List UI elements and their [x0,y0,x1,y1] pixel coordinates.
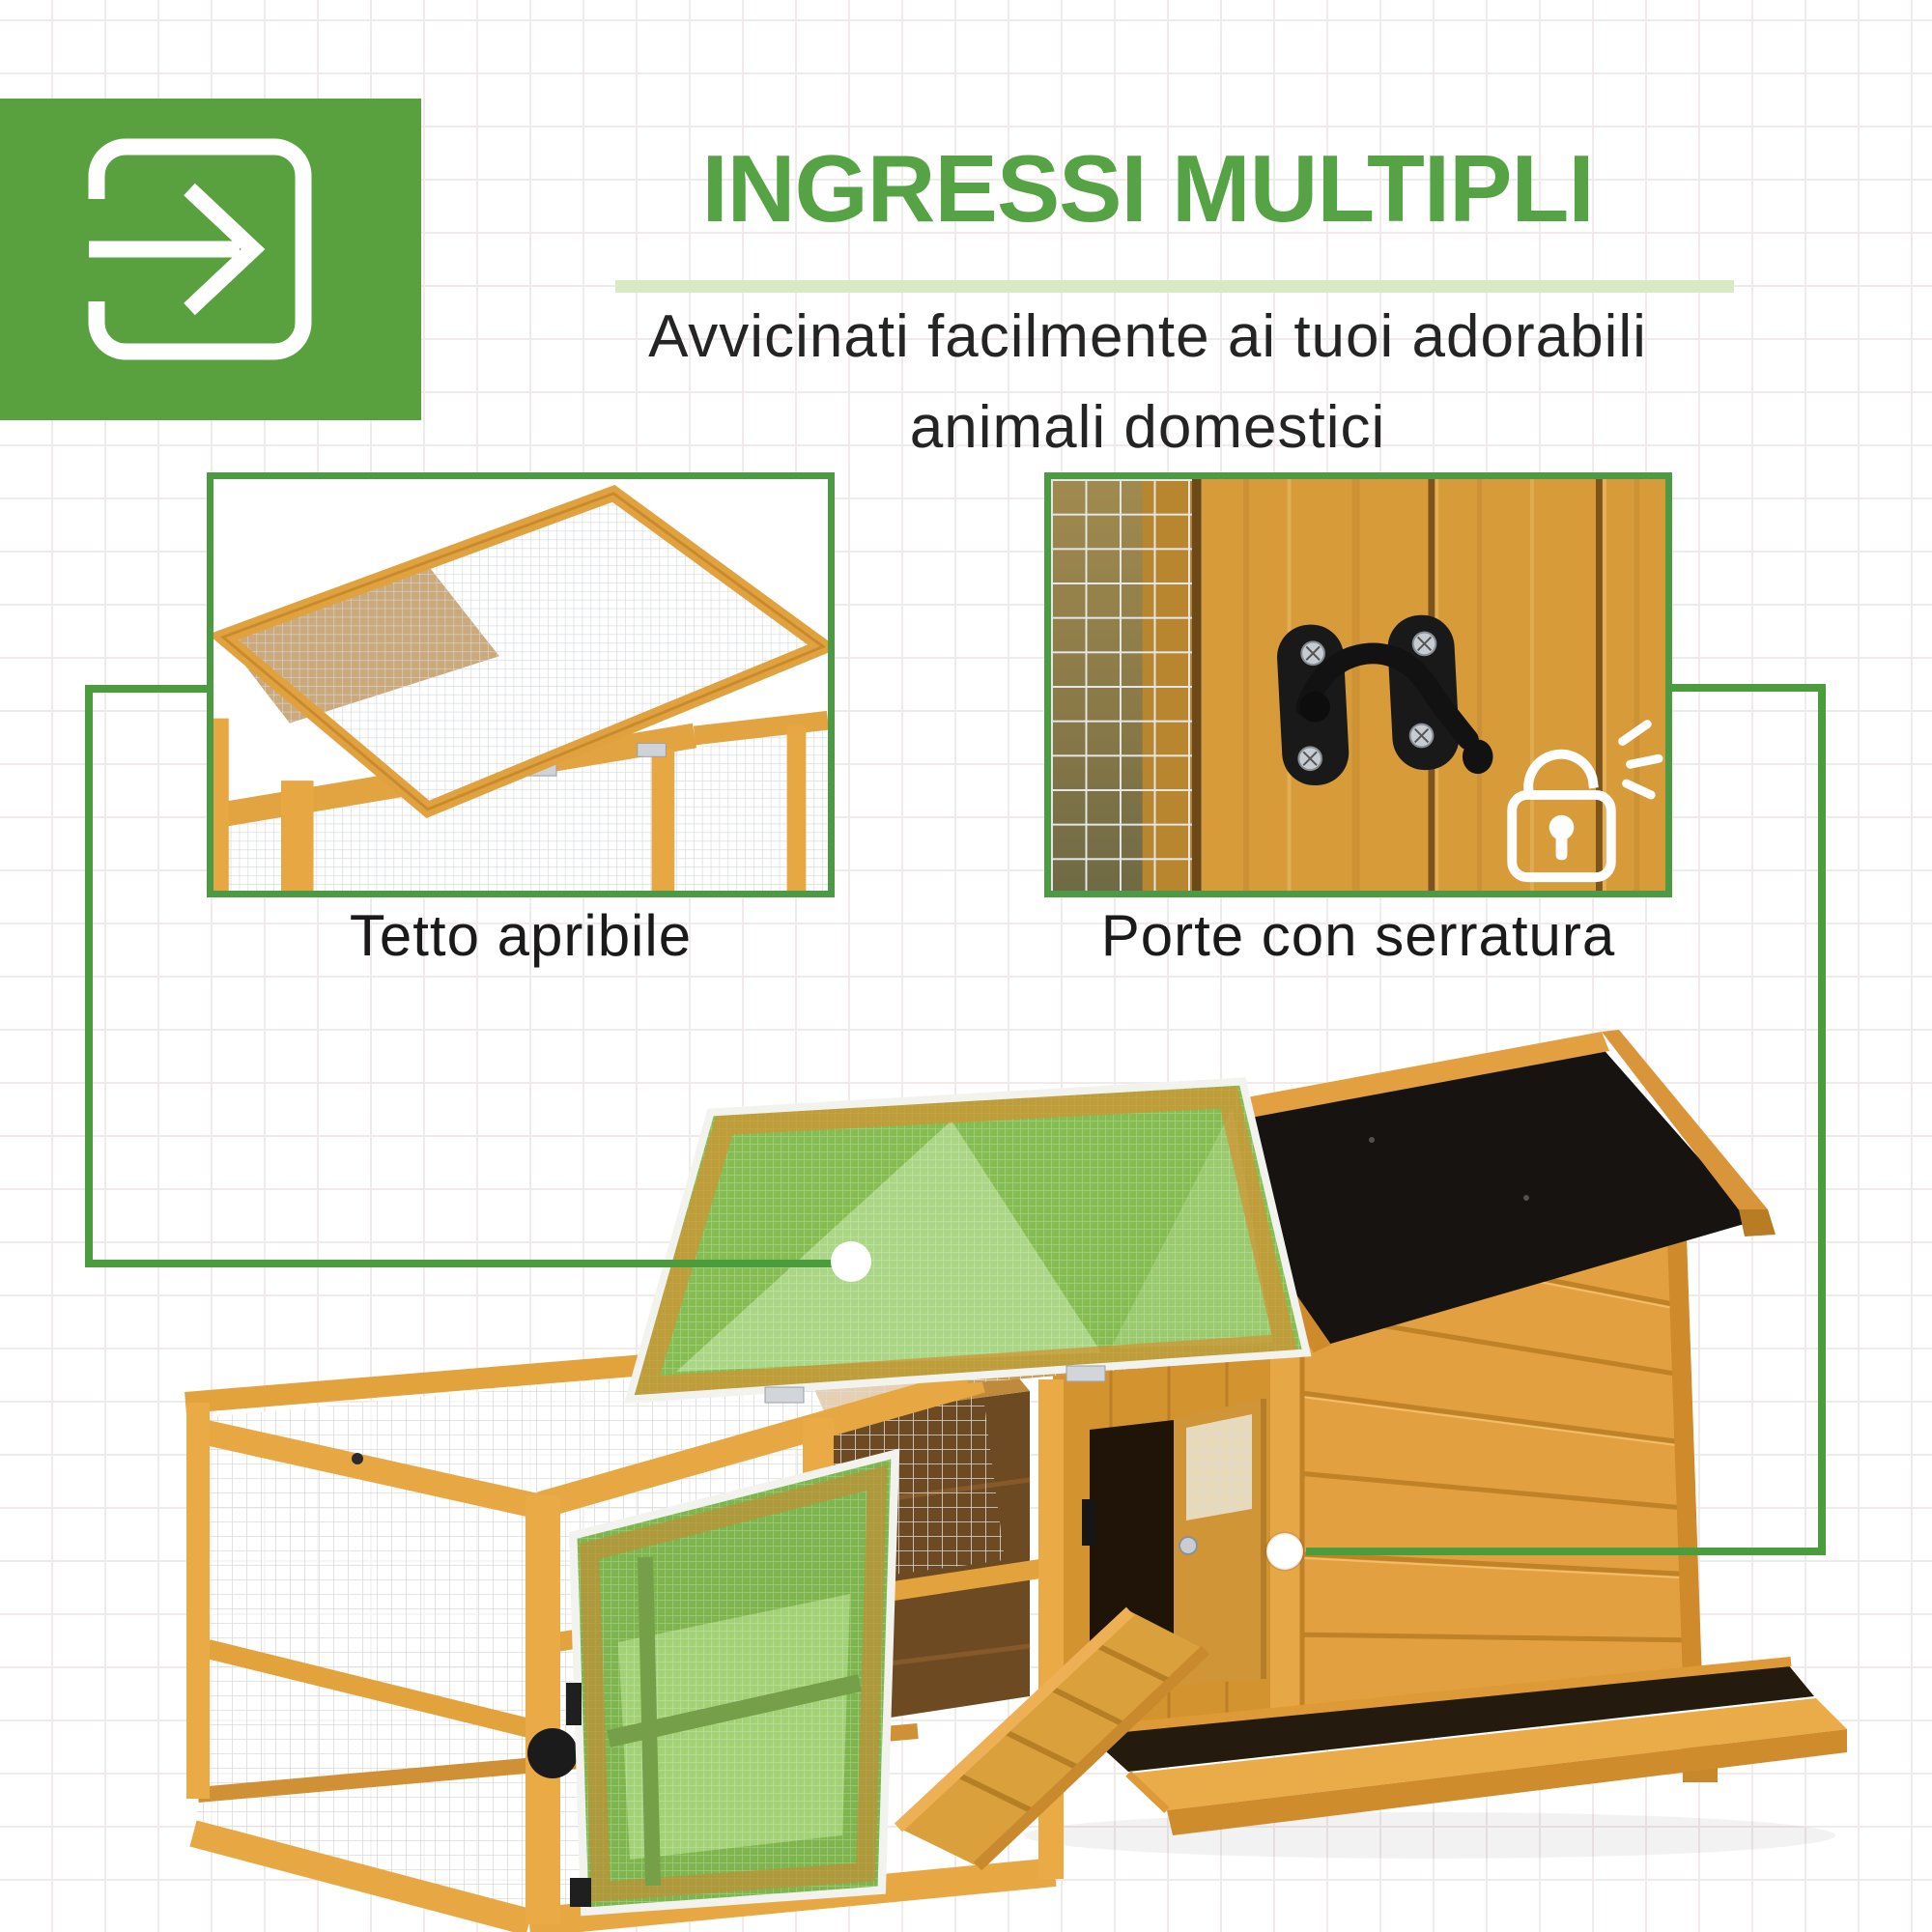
lock-inset-photo [1051,479,1665,891]
feature-inset-roof [207,472,835,897]
lid-hinge [1066,1366,1105,1381]
door-marker-dot [1266,1533,1303,1570]
mesh-roof-highlight [630,1082,1306,1403]
door-knob [1179,1537,1197,1554]
feature-inset-lock [1044,472,1672,897]
roof-marker-dot [831,1241,871,1282]
mesh-door-highlight [566,1455,895,1911]
wheel [527,1728,578,1778]
lid-hinge [765,1387,804,1403]
door-hinge [566,1683,582,1725]
marketing-page: INGRESSI MULTIPLI Avvicinati facilmente … [0,0,1932,1932]
feature-caption-roof: Tetto apribile [207,902,835,969]
door-hinge [570,1878,591,1907]
ground-shadow [1024,1812,1835,1859]
roof-inset-photo [213,479,828,891]
feature-caption-lock: Porte con serratura [1044,902,1672,969]
